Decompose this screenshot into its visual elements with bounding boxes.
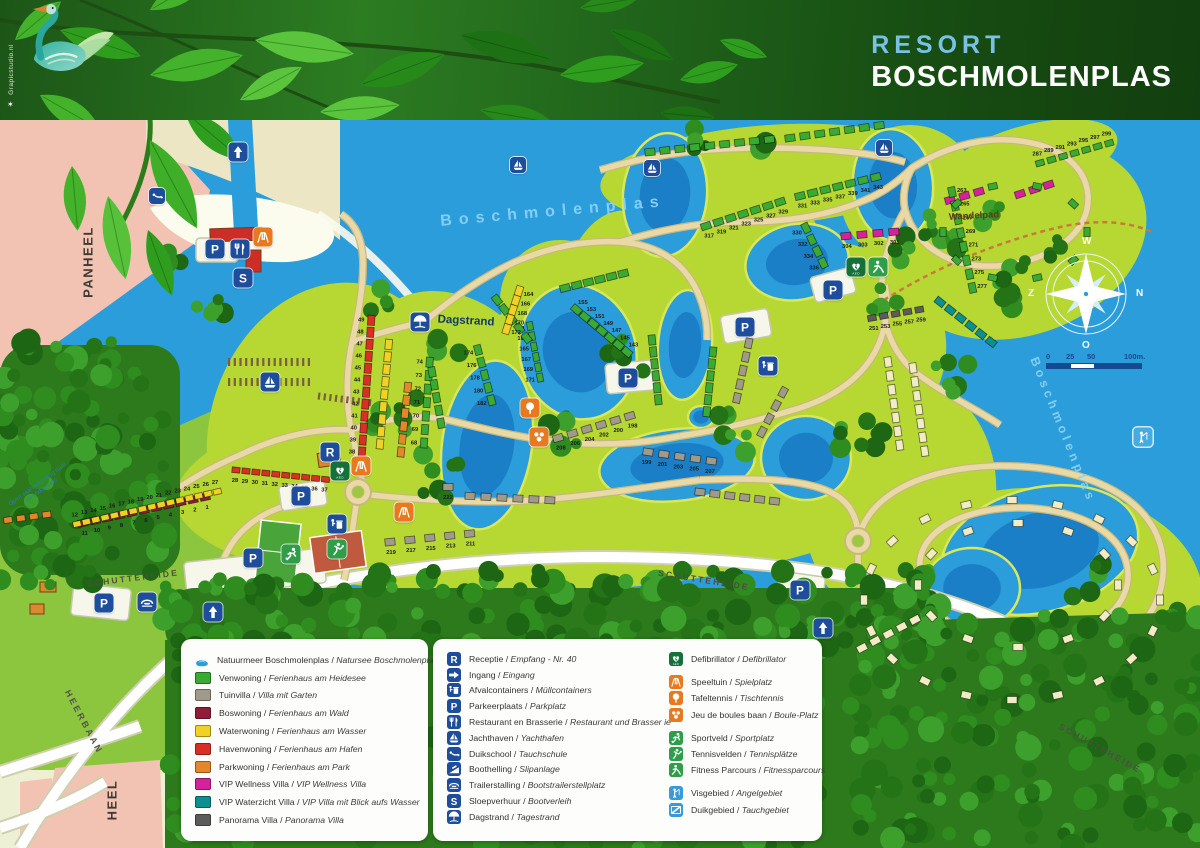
svg-text:70: 70 [413, 413, 419, 419]
ingang-map-icon [204, 603, 223, 622]
svg-text:202: 202 [599, 432, 609, 438]
parkeer-map-icon: P [206, 240, 225, 259]
svg-text:323: 323 [741, 221, 751, 227]
tennis-icon [669, 747, 683, 761]
scale-label: 0 [1046, 352, 1050, 361]
jachthaven-icon [447, 731, 461, 745]
svg-text:167: 167 [521, 357, 531, 363]
svg-text:259: 259 [916, 318, 926, 324]
svg-text:P: P [829, 284, 837, 298]
trailer-map-icon [138, 593, 157, 612]
svg-text:257: 257 [904, 320, 914, 326]
legend-item: Tuinvilla / Villa mit Garten [195, 687, 414, 705]
legend-label: Parkwoning / Ferienhaus am Park [219, 762, 350, 772]
svg-text:174: 174 [464, 351, 474, 357]
legend-label: Restaurant en Brasserie / Restaurant und… [469, 717, 671, 727]
svg-text:169: 169 [523, 367, 533, 373]
speeltuin-map-icon [352, 457, 371, 476]
vip_waterzicht-swatch [195, 796, 211, 808]
svg-text:16: 16 [109, 504, 116, 510]
svg-text:R: R [326, 446, 335, 460]
svg-text:205: 205 [689, 467, 699, 473]
legend-item: Jeu de boules baan / Boule-Platz [669, 707, 816, 723]
afval-map-icon [328, 515, 347, 534]
svg-text:277: 277 [977, 284, 987, 290]
svg-text:301: 301 [890, 240, 900, 246]
svg-text:341: 341 [861, 188, 871, 194]
svg-text:253: 253 [881, 324, 891, 330]
speeltuin-map-icon [254, 228, 273, 247]
svg-text:21: 21 [156, 493, 163, 499]
svg-text:317: 317 [704, 234, 714, 240]
svg-text:AED: AED [852, 272, 860, 276]
watermark-mark: ✶ [7, 100, 14, 109]
svg-text:200: 200 [613, 428, 623, 434]
venwoning-swatch [195, 672, 211, 684]
svg-text:32: 32 [272, 482, 278, 488]
legend-label: VIP Wellness Villa / VIP Wellness Villa [219, 779, 366, 789]
svg-text:143: 143 [629, 342, 639, 348]
compass-top: W [1082, 236, 1091, 247]
svg-text:164: 164 [524, 292, 534, 298]
legend-label: Sloepverhuur / Bootverleih [469, 796, 571, 806]
svg-text:25: 25 [193, 484, 200, 490]
map-label: PANHEEL [81, 226, 96, 298]
svg-text:208: 208 [556, 446, 566, 452]
legend-label: Dagstrand / Tagestrand [469, 812, 560, 822]
svg-text:289: 289 [1044, 148, 1054, 154]
svg-text:269: 269 [966, 229, 976, 235]
svg-text:71: 71 [414, 400, 421, 406]
speeltuin-icon [669, 675, 683, 689]
legend-item: RReceptie / Empfang - Nr. 40 [447, 651, 659, 667]
svg-text:AED: AED [673, 663, 679, 666]
svg-text:206: 206 [570, 441, 580, 447]
svg-text:319: 319 [717, 229, 727, 235]
parkeer-map-icon: P [244, 549, 263, 568]
svg-text:30: 30 [252, 480, 258, 486]
legend-item: Parkwoning / Ferienhaus am Park [195, 758, 414, 776]
svg-text:P: P [297, 490, 305, 504]
svg-text:155: 155 [578, 300, 588, 306]
svg-text:68: 68 [411, 440, 418, 446]
svg-text:40: 40 [350, 425, 356, 431]
scale-label: 50 [1087, 352, 1095, 361]
restaurant-map-icon [231, 240, 250, 259]
svg-text:172: 172 [511, 330, 521, 336]
legend-item: Duikgebied / Tauchgebiet [669, 802, 816, 818]
svg-text:339: 339 [848, 191, 858, 197]
waterwoning-swatch [195, 725, 211, 737]
svg-text:45: 45 [355, 366, 362, 372]
parkeer-map-icon: P [292, 487, 311, 506]
legend-item: Boswoning / Ferienhaus am Wald [195, 704, 414, 722]
legend-item: Natuurmeer Boschmolenplas / Natursee Bos… [195, 651, 414, 669]
svg-text:263: 263 [957, 188, 967, 194]
defib-map-icon: AED [847, 258, 866, 277]
svg-text:149: 149 [603, 321, 613, 327]
svg-text:18: 18 [128, 499, 135, 505]
svg-text:74: 74 [416, 359, 423, 365]
svg-text:AED: AED [336, 476, 344, 480]
svg-text:41: 41 [351, 413, 358, 419]
sloep-map-icon: S [234, 269, 253, 288]
svg-text:334: 334 [804, 254, 814, 260]
compass-bottom: O [1082, 340, 1090, 351]
tuinvilla-swatch [195, 689, 211, 701]
sloep-icon: S [447, 794, 461, 808]
compass-left: Z [1028, 288, 1034, 299]
vip_wellness-swatch [195, 778, 211, 790]
legend-label: Receptie / Empfang - Nr. 40 [469, 654, 576, 664]
receptie-icon: R [447, 652, 461, 666]
svg-text:2: 2 [193, 507, 196, 513]
svg-text:33: 33 [281, 483, 288, 489]
resort-map-poster: 1234567891011121314151617181920212223242… [0, 0, 1200, 848]
boswoning-swatch [195, 707, 211, 719]
duikschool-icon [447, 747, 461, 761]
svg-text:165: 165 [519, 347, 529, 353]
speeltuin-map-icon [395, 503, 414, 522]
svg-text:304: 304 [842, 244, 852, 250]
legend-label: Tafeltennis / Tischtennis [691, 693, 784, 703]
legend-label: Jachthaven / Yachthafen [469, 733, 564, 743]
boothelling-icon [447, 762, 461, 776]
legend-item: SSloepverhuur / Bootverleih [447, 793, 659, 809]
legend-item: Visgebied / Angelgebiet [669, 785, 816, 801]
svg-text:44: 44 [354, 377, 361, 383]
legend-item: Venwoning / Ferienhaus am Heidesee [195, 669, 414, 687]
svg-text:176: 176 [467, 363, 477, 369]
parkeer-map-icon: P [619, 369, 638, 388]
svg-text:166: 166 [521, 302, 531, 308]
legend-label: Ingang / Eingang [469, 670, 535, 680]
svg-text:37: 37 [321, 487, 327, 493]
svg-text:73: 73 [416, 373, 423, 379]
svg-text:P: P [741, 321, 749, 335]
svg-text:36: 36 [311, 486, 318, 492]
svg-text:39: 39 [350, 437, 357, 443]
svg-text:302: 302 [874, 241, 884, 247]
svg-text:147: 147 [612, 328, 622, 334]
boules-icon [669, 708, 683, 722]
svg-text:325: 325 [754, 217, 764, 223]
legend-label: Tuinvilla / Villa mit Garten [219, 690, 317, 700]
legend-item: Boothelling / Slipanlage [447, 762, 659, 778]
svg-text:299: 299 [1102, 132, 1112, 138]
defib-icon: AED [669, 652, 683, 666]
svg-text:11: 11 [82, 531, 89, 537]
swan-logo-icon [0, 0, 118, 80]
legend-label: VIP Waterzicht Villa / VIP Villa mit Bli… [219, 797, 420, 807]
legend-item: Tafeltennis / Tischtennis [669, 690, 816, 706]
svg-text:213: 213 [446, 544, 456, 550]
svg-text:201: 201 [658, 462, 668, 468]
scale-label: 100m. [1124, 352, 1145, 361]
svg-text:P: P [211, 243, 219, 257]
svg-text:330: 330 [792, 230, 802, 236]
legend-item: Panorama Villa / Panorama Villa [195, 811, 414, 829]
svg-text:14: 14 [90, 508, 97, 514]
legend-label: Fitness Parcours / Fitnessparcours [691, 765, 825, 775]
svg-text:15: 15 [100, 506, 107, 512]
svg-text:10: 10 [94, 528, 100, 534]
sportveld-icon [669, 731, 683, 745]
svg-text:7: 7 [132, 520, 135, 526]
legend-item: Sportveld / Sportplatz [669, 730, 816, 746]
duik-icon [669, 803, 683, 817]
legend-label: Duikschool / Tauchschule [469, 749, 567, 759]
legend-label: Boothelling / Slipanlage [469, 764, 560, 774]
svg-text:219: 219 [386, 550, 396, 556]
parkeer-map-icon: P [736, 318, 755, 337]
svg-text:255: 255 [893, 322, 903, 328]
legend-item: Restaurant en Brasserie / Restaurant und… [447, 714, 659, 730]
svg-text:145: 145 [620, 335, 630, 341]
legend-facilities-activities: RReceptie / Empfang - Nr. 40Ingang / Ein… [433, 639, 822, 841]
svg-text:171: 171 [525, 377, 535, 383]
vis-icon [669, 786, 683, 800]
legend-label: Visgebied / Angelgebiet [691, 788, 782, 798]
svg-text:297: 297 [1090, 135, 1100, 141]
havenwoning-swatch [195, 743, 211, 755]
svg-text:251: 251 [869, 326, 879, 332]
parkeer-map-icon: P [95, 594, 114, 613]
legend-label: Natuurmeer Boschmolenplas / Natursee Bos… [217, 655, 438, 665]
svg-text:337: 337 [835, 194, 845, 200]
legend-item: AEDDefibrillator / Defibrillator [669, 651, 816, 667]
svg-text:178: 178 [470, 376, 480, 382]
svg-text:P: P [451, 702, 458, 713]
afval-icon [447, 683, 461, 697]
svg-text:20: 20 [146, 495, 152, 501]
svg-text:275: 275 [974, 270, 984, 276]
legend-item: Trailerstalling / Bootstrailerstellplatz [447, 777, 659, 793]
svg-text:168: 168 [517, 311, 527, 317]
sportveld-map-icon [282, 545, 301, 564]
svg-text:153: 153 [586, 307, 596, 313]
svg-text:151: 151 [595, 314, 605, 320]
svg-text:170: 170 [514, 321, 524, 327]
legend-label: Venwoning / Ferienhaus am Heidesee [219, 673, 366, 683]
legend-label: Defibrillator / Defibrillator [691, 654, 786, 664]
svg-text:343: 343 [873, 185, 883, 191]
svg-text:333: 333 [810, 201, 820, 207]
legend-item: VIP Wellness Villa / VIP Wellness Villa [195, 776, 414, 794]
svg-text:29: 29 [242, 479, 249, 485]
svg-text:293: 293 [1067, 141, 1077, 147]
legend-label: Sportveld / Sportplatz [691, 733, 774, 743]
svg-text:P: P [249, 552, 257, 566]
legend-label: Panorama Villa / Panorama Villa [219, 815, 344, 825]
svg-text:22: 22 [165, 491, 171, 497]
svg-text:47: 47 [356, 342, 362, 348]
svg-text:329: 329 [778, 209, 788, 215]
svg-text:331: 331 [798, 204, 808, 210]
svg-text:17: 17 [118, 501, 124, 507]
parkwoning-swatch [195, 761, 211, 773]
svg-text:303: 303 [858, 243, 868, 249]
svg-text:46: 46 [355, 354, 362, 360]
jachthaven-map-icon [876, 140, 892, 156]
jachthaven-map-icon [261, 373, 280, 392]
svg-text:S: S [451, 797, 458, 808]
svg-text:287: 287 [1032, 151, 1042, 157]
legend-housing: Natuurmeer Boschmolenplas / Natursee Bos… [181, 639, 428, 841]
scale-bar: 02550100m. [1046, 352, 1142, 369]
svg-text:24: 24 [184, 486, 191, 492]
trailer-icon [447, 778, 461, 792]
restaurant-icon [447, 715, 461, 729]
header-banner: Grapicstudio.nl ✶ RESORT BOSCHMOLENPLAS [0, 0, 1200, 120]
svg-text:69: 69 [412, 427, 419, 433]
legend-item: Ingang / Eingang [447, 667, 659, 683]
svg-text:211: 211 [466, 542, 476, 548]
tafeltennis-icon [669, 691, 683, 705]
compass-right: N [1136, 288, 1143, 299]
svg-text:27: 27 [212, 480, 218, 486]
compass-rose: W N O Z [1040, 248, 1132, 340]
tennis-map-icon [328, 540, 347, 559]
legend-label: Trailerstalling / Bootstrailerstellplatz [469, 780, 605, 790]
ingang-r-icon [447, 668, 461, 682]
legend-label: Afvalcontainers / Müllcontainers [469, 685, 592, 695]
duikschool-map-icon [149, 188, 165, 204]
dagstrand-icon [447, 810, 461, 824]
parkeer-icon: P [447, 699, 461, 713]
jachthaven-map-icon [644, 160, 660, 176]
svg-text:198: 198 [628, 424, 638, 430]
svg-text:327: 327 [766, 213, 776, 219]
svg-text:48: 48 [357, 330, 364, 336]
legend-label: Boswoning / Ferienhaus am Wald [219, 708, 349, 718]
dagstrand-map-icon [411, 313, 430, 332]
logo-name-word: BOSCHMOLENPLAS [871, 60, 1172, 95]
svg-text:R: R [450, 655, 457, 666]
svg-text:72: 72 [415, 386, 421, 392]
afval-map-icon [759, 357, 778, 376]
lake-swatch-icon [195, 655, 209, 665]
legend-item: Jachthaven / Yachthafen [447, 730, 659, 746]
legend-item: Dagstrand / Tagestrand [447, 809, 659, 825]
svg-text:321: 321 [729, 225, 739, 231]
scale-label: 25 [1066, 352, 1074, 361]
legend-item: VIP Waterzicht Villa / VIP Villa mit Bli… [195, 793, 414, 811]
svg-text:P: P [100, 597, 108, 611]
jachthaven-map-icon [510, 157, 526, 173]
parkeer-map-icon: P [824, 281, 843, 300]
legend-item: PParkeerplaats / Parkplatz [447, 698, 659, 714]
legend-item: Havenwoning / Ferienhaus am Hafen [195, 740, 414, 758]
logo: RESORT BOSCHMOLENPLAS [871, 30, 1172, 95]
svg-text:273: 273 [971, 256, 981, 262]
svg-text:19: 19 [137, 497, 144, 503]
legend-label: Parkeerplaats / Parkplatz [469, 701, 566, 711]
ingang-map-icon [814, 619, 833, 638]
svg-text:42: 42 [352, 401, 358, 407]
svg-text:S: S [239, 272, 247, 286]
legend-label: Speeltuin / Spielplatz [691, 677, 772, 687]
svg-text:291: 291 [1055, 145, 1065, 151]
fitness-map-icon [869, 258, 888, 277]
svg-text:26: 26 [202, 482, 209, 488]
svg-text:199: 199 [642, 460, 652, 466]
legend-item: Tennisvelden / Tennisplätze [669, 746, 816, 762]
svg-text:28: 28 [232, 478, 239, 484]
svg-text:336: 336 [809, 265, 819, 271]
panorama-swatch [195, 814, 211, 826]
logo-resort-word: RESORT [871, 30, 1172, 60]
receptie-map-icon: R [321, 443, 340, 462]
parkeer-map-icon: P [791, 581, 810, 600]
svg-text:207: 207 [705, 469, 715, 475]
legend-item: Duikschool / Tauchschule [447, 746, 659, 762]
svg-text:203: 203 [673, 464, 683, 470]
svg-text:P: P [624, 372, 632, 386]
tafeltennis-map-icon [521, 399, 540, 418]
defib-map-icon: AED [331, 462, 350, 481]
svg-text:13: 13 [81, 510, 88, 516]
svg-text:38: 38 [349, 449, 356, 455]
svg-text:271: 271 [969, 243, 979, 249]
svg-text:332: 332 [798, 242, 808, 248]
legend-item: Fitness Parcours / Fitnessparcours [669, 762, 816, 778]
svg-text:31: 31 [262, 481, 269, 487]
svg-text:182: 182 [477, 401, 487, 407]
svg-text:49: 49 [358, 318, 365, 324]
svg-text:217: 217 [406, 548, 416, 554]
legend-item: Afvalcontainers / Müllcontainers [447, 683, 659, 699]
svg-text:P: P [796, 584, 804, 598]
fitness-icon [669, 763, 683, 777]
legend-label: Havenwoning / Ferienhaus am Hafen [219, 744, 362, 754]
svg-text:204: 204 [585, 437, 595, 443]
legend-label: Duikgebied / Tauchgebiet [691, 805, 789, 815]
boules-map-icon [530, 428, 549, 447]
svg-text:215: 215 [426, 546, 436, 552]
legend-item: Speeltuin / Spielplatz [669, 674, 816, 690]
legend-label: Jeu de boules baan / Boule-Platz [691, 710, 819, 720]
map-label: HEEL [105, 780, 120, 821]
svg-text:23: 23 [174, 489, 181, 495]
legend-label: Tennisvelden / Tennisplätze [691, 749, 797, 759]
svg-text:43: 43 [353, 389, 360, 395]
vis-map-icon [1134, 428, 1153, 447]
svg-text:295: 295 [1079, 138, 1089, 144]
legend-item: Waterwoning / Ferienhaus am Wasser [195, 722, 414, 740]
legend-label: Waterwoning / Ferienhaus am Wasser [219, 726, 366, 736]
svg-text:335: 335 [823, 197, 833, 203]
svg-text:12: 12 [72, 512, 78, 518]
svg-text:222: 222 [443, 495, 453, 501]
ingang-map-icon [229, 143, 248, 162]
svg-text:180: 180 [474, 388, 484, 394]
